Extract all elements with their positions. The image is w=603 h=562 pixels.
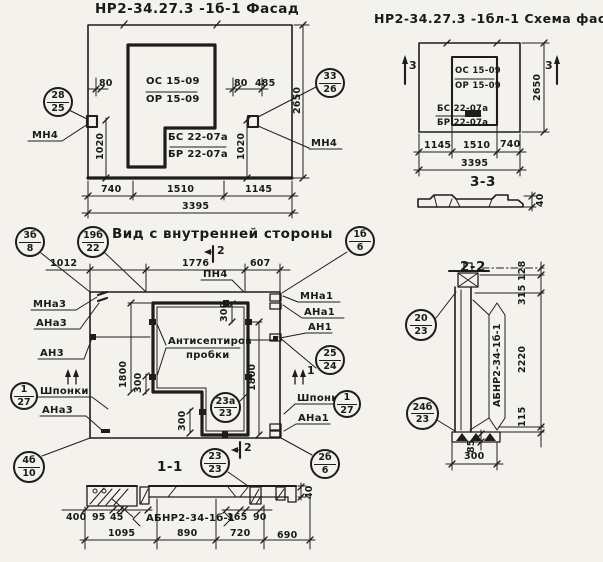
view-callout-1b-6: 1б 6 <box>345 226 375 256</box>
sec11-dim-720: 720 <box>230 529 250 539</box>
sec11-dim-165: 165 <box>227 513 247 523</box>
view-callout-3b-8: 3б 8 <box>15 227 45 257</box>
section-3-3-profile <box>418 195 523 207</box>
view-pn4-label: ПН4 <box>203 270 228 280</box>
view-shponki-left-label: Шпонки <box>40 387 89 397</box>
view-antiseptic-label-line1: Антисептиров <box>168 337 252 347</box>
view-callout-25-24: 25 24 <box>315 345 345 375</box>
view-ana3-label: АНа3 <box>36 319 67 329</box>
scheme-section-mark-3-right: 3 <box>545 60 553 71</box>
facade-bs-label: БС 22-07а <box>168 133 226 143</box>
facade-dim-1145: 1145 <box>245 185 272 195</box>
sec22-dim-2220: 2220 <box>518 346 528 373</box>
sec22-dim-115: 115 <box>518 407 528 427</box>
view-callout-23a-23: 23а 23 <box>210 392 241 423</box>
scheme-dim-3395: 3395 <box>461 159 488 169</box>
view-section-mark-1-right: 1 <box>307 365 315 376</box>
view-antiseptic-label-line2: пробки <box>186 351 230 361</box>
facade-mn4-left-label: МН4 <box>32 131 58 141</box>
facade-dim-3395: 3395 <box>182 202 209 212</box>
scheme-os-label: ОС 15-09 <box>455 67 495 76</box>
view-dim-607: 607 <box>250 259 270 269</box>
view-callout-19b-22: 19б 22 <box>77 226 109 258</box>
sec11-dim-690: 690 <box>277 531 297 541</box>
sec22-callout-24b-23: 24б 23 <box>406 397 439 430</box>
scheme-or-label: ОР 15-09 <box>455 82 495 91</box>
scheme-dim-2650: 2650 <box>533 74 543 101</box>
view-dim-1012: 1012 <box>50 259 77 269</box>
view-an1-label: АН1 <box>308 323 332 333</box>
scheme-br-label: БР 22-07а <box>437 119 488 128</box>
view-callout-2b-6: 2б 6 <box>310 449 340 479</box>
scheme-dim-1145: 1145 <box>424 141 451 151</box>
facade-dim-740: 740 <box>101 185 121 195</box>
view-mna1-label: МНа1 <box>300 292 333 302</box>
view-ana1-bottom-label: АНа1 <box>298 414 329 424</box>
facade-dim-1020-right: 1020 <box>237 133 247 160</box>
view-callout-1-27-right: 1 27 <box>333 390 361 418</box>
section-2-2-label: 2-2 <box>460 261 486 275</box>
view-ana1-label: АНа1 <box>304 308 335 318</box>
section-3-3-label: 3-3 <box>470 176 496 190</box>
sec11-dim-95: 95 <box>92 513 106 523</box>
sec11-dim-90: 90 <box>253 513 267 523</box>
sec22-dim-300: 300 <box>464 452 484 462</box>
facade-mn4-right-label: МН4 <box>311 139 337 149</box>
facade-br-label: БР 22-07а <box>168 150 226 160</box>
facade-os-label: ОС 15-09 <box>146 77 198 87</box>
view-dim-1776: 1776 <box>182 259 209 269</box>
view-callout-4b-10: 4б 10 <box>13 451 45 483</box>
view-dim-1800-left: 1800 <box>119 361 129 388</box>
scheme-dim-740: 740 <box>500 140 520 150</box>
scheme-section-mark-3-left: 3 <box>409 60 417 71</box>
section-1-1-label: 1-1 <box>157 461 183 475</box>
facade-or-label: ОР 15-09 <box>146 95 198 105</box>
view-an3-label: АН3 <box>40 349 64 359</box>
facade-callout-28-25: 28 25 <box>43 87 73 117</box>
view-dim-300-bottom: 300 <box>178 411 188 431</box>
view-callout-23-23: 23 23 <box>200 448 230 478</box>
sec11-dim-45: 45 <box>110 513 124 523</box>
scheme-bs-label: БС 22-07а <box>437 105 488 114</box>
drawing-linework <box>0 0 603 562</box>
scheme-title: НР2-34.27.3 -1бл-1 Схема фасада <box>374 13 603 26</box>
facade-dim-1510: 1510 <box>167 185 194 195</box>
view-title: Вид с внутренней стороны <box>112 228 333 242</box>
view-mna3-label: МНа3 <box>33 300 66 310</box>
facade-dim-80-left: 80 <box>99 79 113 89</box>
facade-title: НР2-34.27.3 -1б-1 Фасад <box>95 3 299 17</box>
section-3-3-dim-40: 40 <box>536 193 546 207</box>
view-dim-300-top: 300 <box>220 302 230 322</box>
view-callout-1-27-left: 1 27 <box>10 382 38 410</box>
facade-callout-33-26: 33 26 <box>315 68 345 98</box>
facade-dim-2650: 2650 <box>293 87 303 114</box>
section-2-2-brand-label: АБНР2-34-1б-1 <box>493 323 503 407</box>
scheme-dim-1510: 1510 <box>463 141 490 151</box>
facade-dim-80-right: 80 <box>234 79 248 89</box>
view-dim-1800-right: 1800 <box>248 364 258 391</box>
sec22-callout-20-23: 20 23 <box>405 309 437 341</box>
facade-dim-1020-left: 1020 <box>96 133 106 160</box>
view-ana3-bottom-label: АНа3 <box>42 406 73 416</box>
sec22-dim-315: 315 <box>518 285 528 305</box>
blueprint-sheet: НР2-34.27.3 -1б-1 Фасад ОС 15-09 ОР 15-0… <box>0 0 603 562</box>
sec11-dim-400: 400 <box>66 513 86 523</box>
inner-view-drawing <box>31 246 347 486</box>
sec11-dim-890: 890 <box>177 529 197 539</box>
sec22-dim-128: 128 <box>518 261 528 281</box>
sec11-dim-40: 40 <box>305 485 315 499</box>
view-section-mark-2-bottom: 2 <box>244 442 252 453</box>
view-section-mark-2-top: 2 <box>217 245 225 256</box>
facade-dim-485: 485 <box>255 79 275 89</box>
section-1-1-brand-label: АБНР2-34-1б-1 <box>146 514 222 524</box>
view-dim-300-left: 300 <box>134 373 144 393</box>
sec11-dim-1095: 1095 <box>108 529 135 539</box>
